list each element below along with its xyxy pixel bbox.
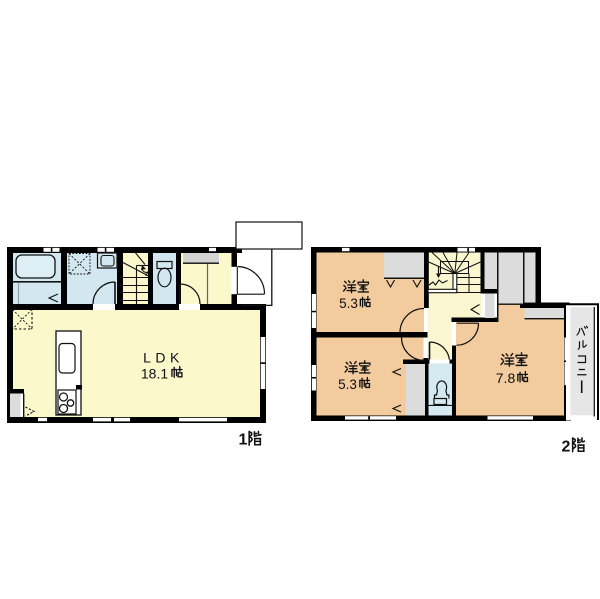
- svg-text:5.3: 5.3: [338, 377, 357, 392]
- svg-text:5.3: 5.3: [339, 296, 358, 311]
- svg-text:LDK: LDK: [143, 350, 184, 366]
- svg-text:7.8: 7.8: [496, 370, 516, 386]
- svg-text:2: 2: [562, 439, 571, 456]
- svg-text:1: 1: [239, 432, 248, 449]
- svg-text:18.1: 18.1: [141, 366, 168, 382]
